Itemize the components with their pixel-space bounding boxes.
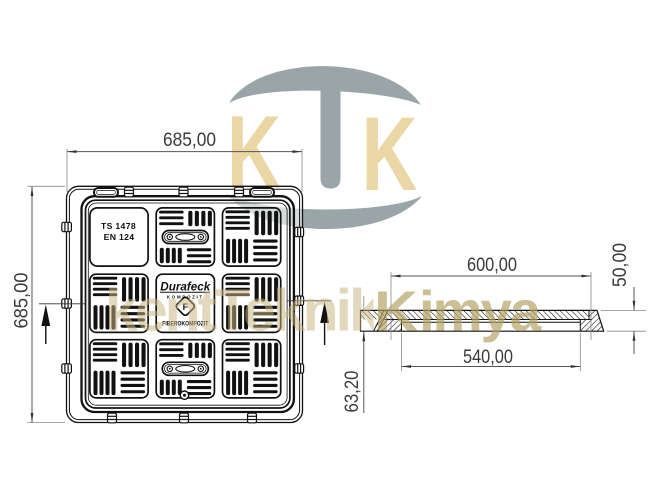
svg-text:685,00: 685,00 bbox=[163, 129, 216, 151]
svg-text:Kimya: Kimya bbox=[374, 280, 542, 343]
svg-text:685,00: 685,00 bbox=[11, 272, 33, 328]
svg-text:600,00: 600,00 bbox=[467, 254, 517, 276]
svg-text:63,20: 63,20 bbox=[342, 371, 363, 413]
svg-text:540,00: 540,00 bbox=[463, 346, 513, 368]
svg-text:EN 124: EN 124 bbox=[104, 232, 135, 242]
svg-text:50,00: 50,00 bbox=[610, 243, 631, 287]
svg-text:TS 1478: TS 1478 bbox=[101, 221, 136, 231]
svg-text:K: K bbox=[362, 96, 418, 213]
